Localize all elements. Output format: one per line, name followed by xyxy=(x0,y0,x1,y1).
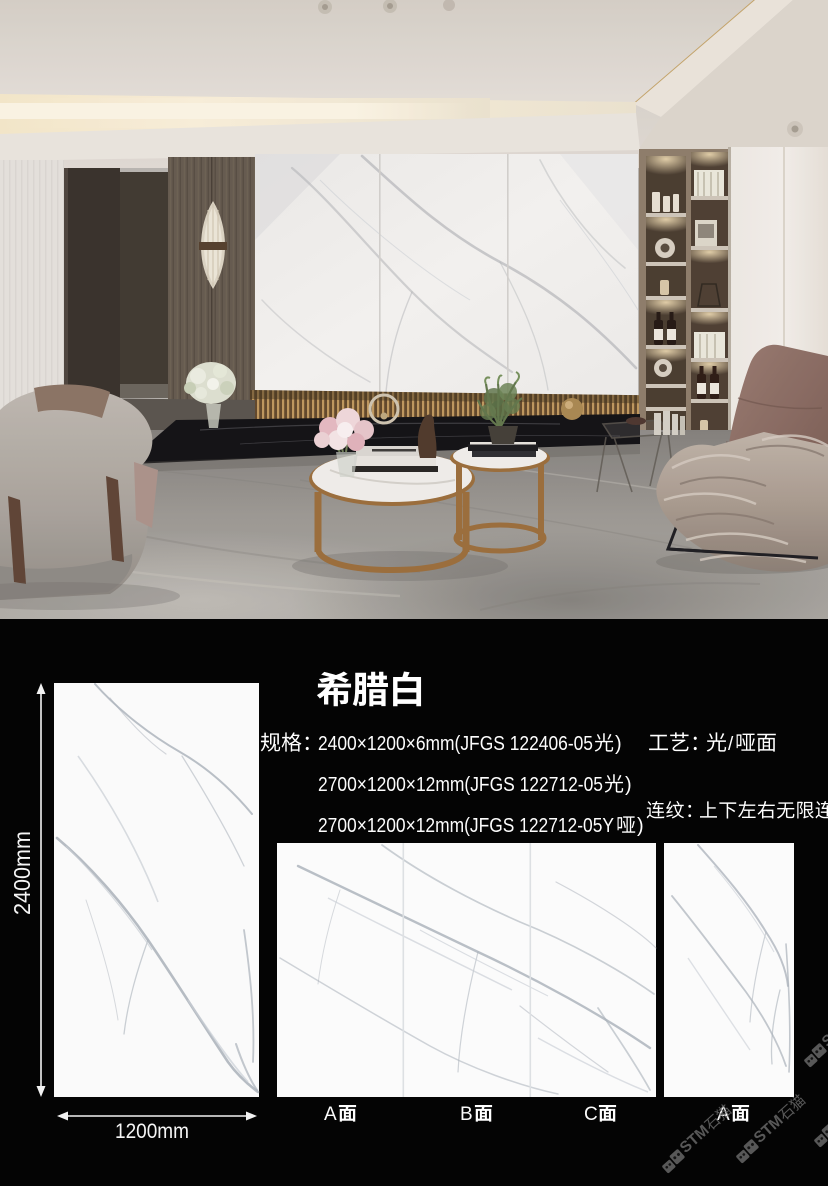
svg-text:2700×1200×12mm(JFGS 122712-05: 2700×1200×12mm(JFGS 122712-05 xyxy=(318,774,603,796)
svg-text:2700×1200×12mm(JFGS 122712-05Y: 2700×1200×12mm(JFGS 122712-05Y xyxy=(318,815,614,837)
svg-text:): ) xyxy=(615,733,622,755)
svg-text:): ) xyxy=(637,815,644,837)
svg-text:1200mm: 1200mm xyxy=(115,1120,189,1143)
svg-text:2400mm: 2400mm xyxy=(9,831,35,915)
svg-text:B: B xyxy=(460,1104,473,1125)
svg-text:C: C xyxy=(584,1104,598,1125)
svg-text:2400×1200×6mm(JFGS 122406-05: 2400×1200×6mm(JFGS 122406-05 xyxy=(318,733,593,755)
svg-text:): ) xyxy=(625,774,632,796)
svg-text:/: / xyxy=(728,734,734,755)
svg-text:A: A xyxy=(324,1104,337,1125)
